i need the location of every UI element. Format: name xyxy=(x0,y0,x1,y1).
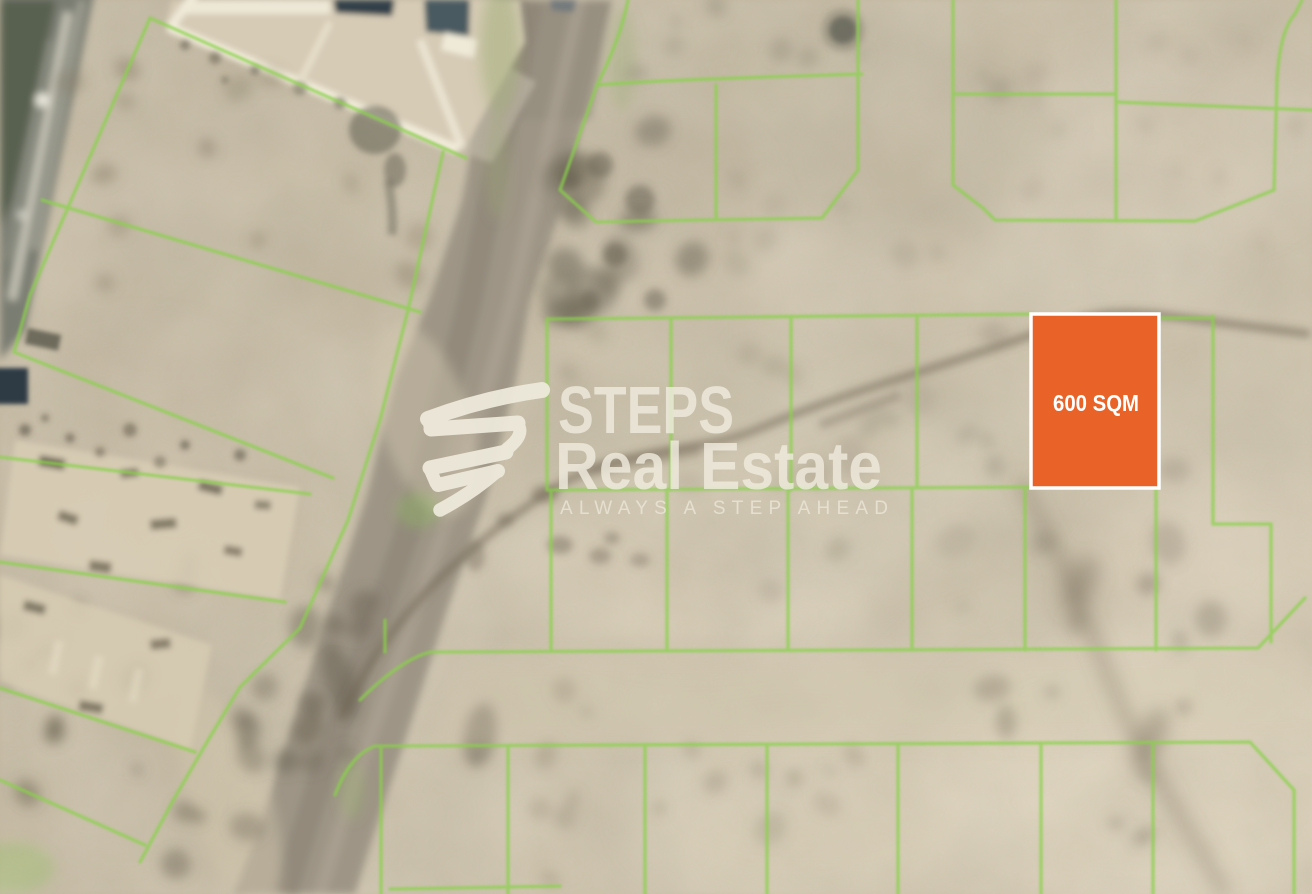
svg-text:Real Estate: Real Estate xyxy=(555,429,882,504)
svg-text:600 SQM: 600 SQM xyxy=(1053,390,1139,416)
svg-text:ALWAYS A STEP AHEAD: ALWAYS A STEP AHEAD xyxy=(560,498,888,519)
